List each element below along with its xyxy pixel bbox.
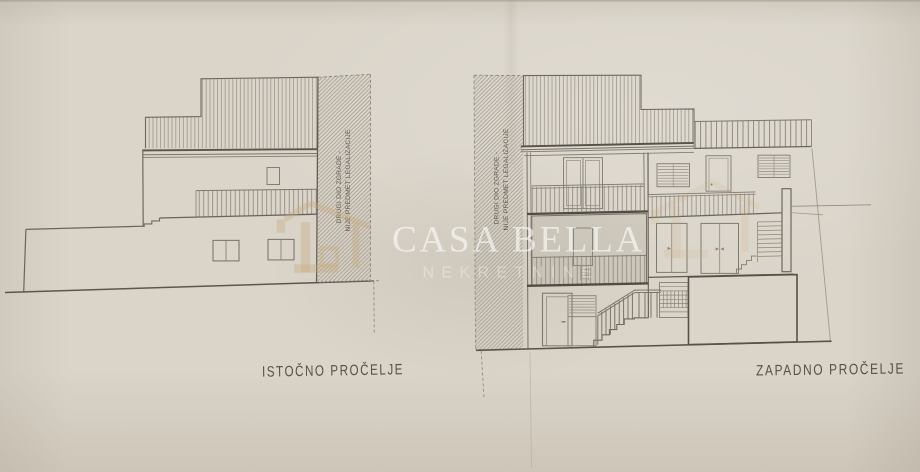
svg-text:DRUGI DIO ZGRADE -: DRUGI DIO ZGRADE - [494,152,501,225]
svg-text:NIJE PREDMET LEGALIZACIJE: NIJE PREDMET LEGALIZACIJE [503,128,510,230]
svg-text:ZAPADNO PROČELJE: ZAPADNO PROČELJE [756,360,905,379]
svg-text:CASA BELLA: CASA BELLA [392,220,645,261]
svg-text:ISTOČNO PROČELJE: ISTOČNO PROČELJE [262,361,404,380]
svg-text:NEKRETNINE: NEKRETNINE [422,265,599,282]
